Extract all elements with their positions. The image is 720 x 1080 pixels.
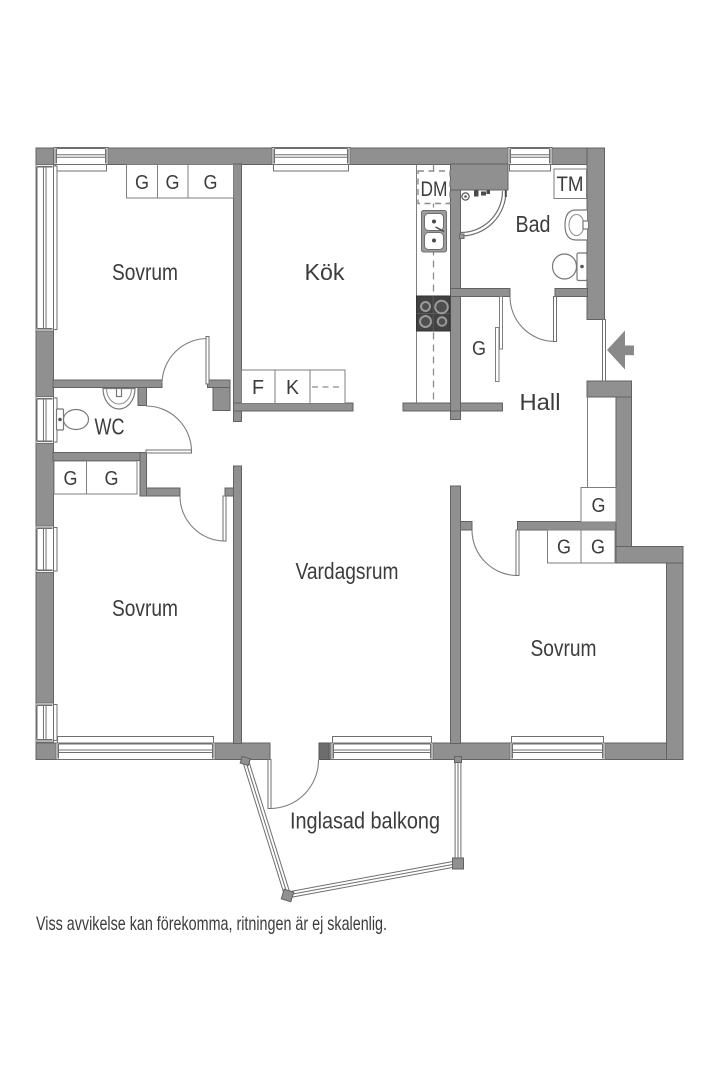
svg-text:Vardagsrum: Vardagsrum [296, 558, 399, 584]
svg-text:G: G [135, 172, 149, 194]
svg-text:G: G [592, 495, 606, 517]
svg-text:Sovrum: Sovrum [112, 259, 178, 285]
svg-text:K: K [286, 377, 300, 399]
svg-text:Inglasad balkong: Inglasad balkong [290, 808, 440, 834]
svg-text:TM: TM [557, 173, 584, 196]
svg-text:Viss avvikelse kan förekomma,: Viss avvikelse kan förekomma, ritningen … [36, 913, 387, 935]
svg-text:G: G [472, 338, 486, 360]
svg-text:Hall: Hall [520, 389, 561, 415]
svg-text:F: F [252, 377, 264, 399]
svg-text:G: G [105, 468, 119, 490]
svg-text:DM: DM [421, 178, 448, 201]
svg-text:G: G [557, 537, 571, 559]
svg-text:Sovrum: Sovrum [531, 635, 597, 661]
svg-text:WC: WC [95, 414, 125, 440]
svg-text:Sovrum: Sovrum [112, 595, 178, 621]
svg-text:Bad: Bad [516, 211, 551, 237]
svg-text:G: G [64, 468, 78, 490]
svg-text:Kök: Kök [305, 259, 345, 285]
svg-text:G: G [166, 172, 180, 194]
svg-text:G: G [591, 537, 605, 559]
svg-text:G: G [204, 172, 218, 194]
